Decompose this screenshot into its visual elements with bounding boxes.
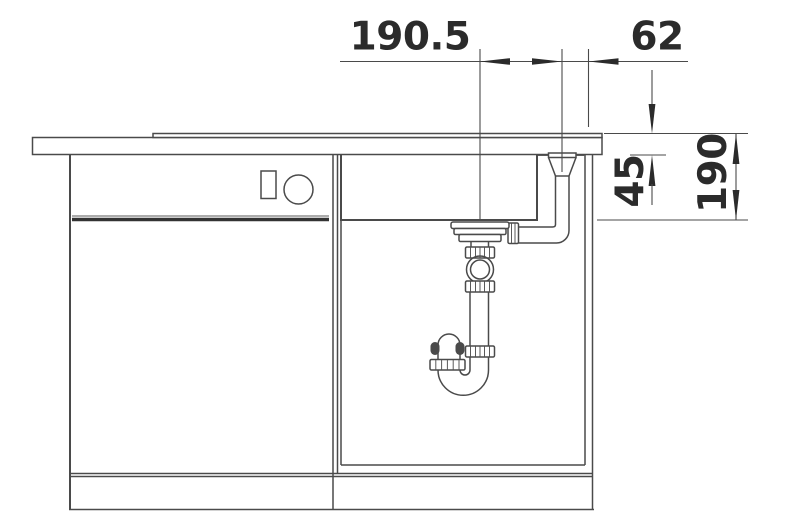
technical-drawing-canvas: 190.5 62 45 190 [0, 0, 800, 521]
sink-installation-diagram: 190.5 62 45 190 [0, 0, 800, 521]
socket-symbol [261, 171, 276, 199]
drain-nut-lower [466, 281, 495, 292]
strainer-flange-tier1 [451, 222, 509, 229]
overflow-pipe [508, 153, 585, 244]
dim-label-overflow-depth: 45 [608, 154, 653, 207]
arrowhead-down [649, 104, 656, 134]
trap-dome-cap [438, 334, 460, 345]
dim-label-drain-to-overflow: 190.5 [350, 15, 471, 60]
strainer-flange-tier2 [454, 229, 506, 235]
dim-label-overflow-to-edge: 62 [630, 15, 683, 60]
funnel-right-side [569, 158, 576, 177]
dim-label-bowl-depth: 190 [691, 133, 736, 213]
trap-side-knob-right [456, 342, 465, 355]
sink-bowl-outline [341, 154, 537, 220]
cabinet [69, 155, 594, 510]
siphon-trap [430, 334, 489, 395]
countertop-slab [33, 138, 603, 155]
sink-rim-flange [153, 134, 602, 138]
knob-symbol [284, 175, 313, 204]
strainer-flange-tier3 [459, 235, 501, 242]
funnel-left-side [549, 158, 556, 177]
tailpipe-nut [466, 346, 495, 357]
arrowhead-left [480, 58, 510, 65]
u-bend-outer [438, 370, 489, 395]
arrowhead-left [589, 58, 619, 65]
sink-bowl [341, 154, 537, 220]
arrowhead-right [532, 58, 562, 65]
countertop [33, 134, 603, 155]
trap-ball-inner [471, 260, 490, 279]
trap-side-knob-left [431, 342, 440, 355]
pipe-outer-edge [519, 176, 570, 243]
dimension-annotations: 190.5 62 45 190 [340, 15, 748, 221]
